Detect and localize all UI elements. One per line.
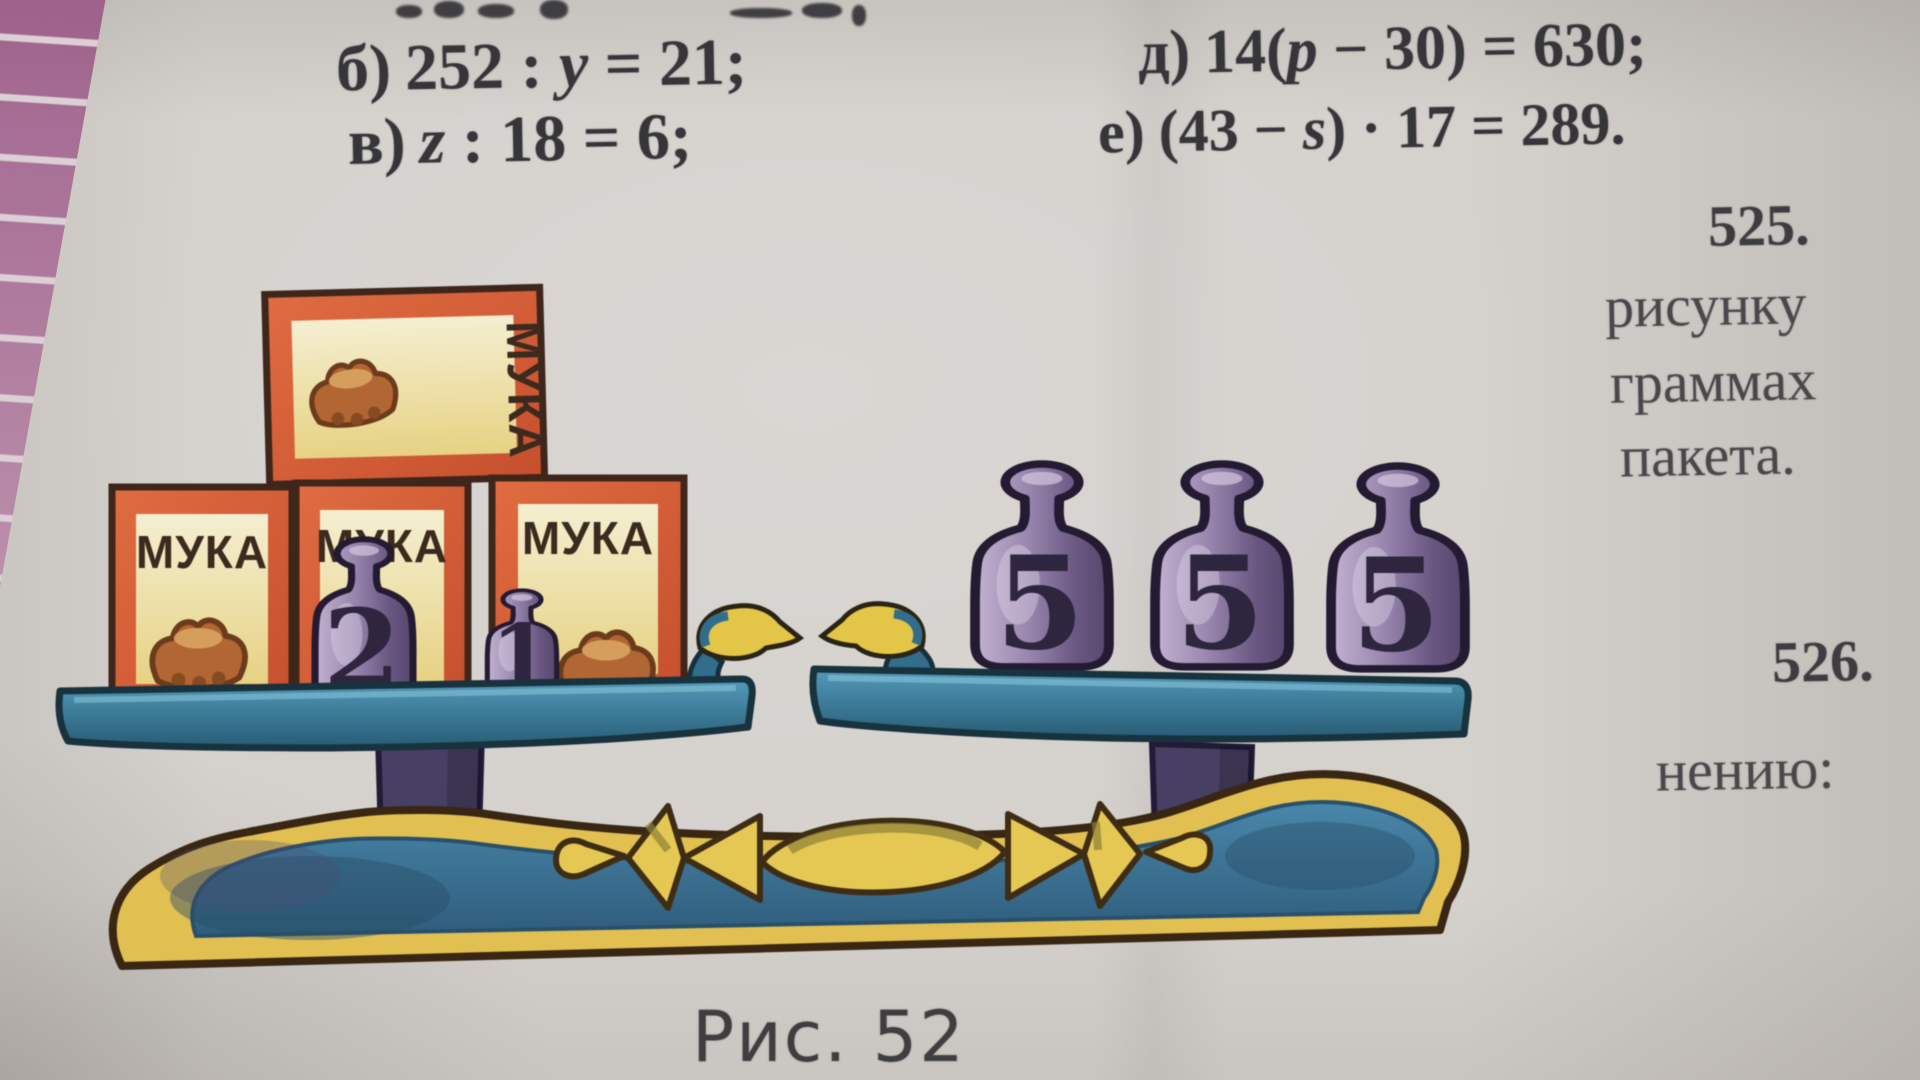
flour-box-1: МУКА — [112, 487, 292, 702]
flour-label-vertical: МУКА — [496, 320, 553, 459]
weight-digit: 5 — [1175, 529, 1264, 679]
flour-label: МУКА — [136, 526, 268, 578]
weight-5kg-3: 5 — [1331, 466, 1465, 681]
fish-ornament — [556, 804, 1210, 908]
weight-digit: 5 — [1351, 531, 1440, 681]
flour-box-top: МУКА — [265, 287, 553, 484]
weight-5kg-2: 5 — [1155, 464, 1289, 679]
balance-scale-illustration: МУКА МУКА МУКА МУКА 2 1 — [0, 0, 1920, 1080]
base-shading — [1225, 822, 1415, 890]
right-pan — [813, 669, 1468, 739]
flour-label: МУКА — [522, 512, 654, 564]
weight-digit: 5 — [995, 529, 1084, 679]
left-pan — [59, 679, 752, 748]
weight-5kg-1: 5 — [975, 464, 1109, 679]
left-swan-head — [699, 606, 800, 659]
right-swan-head — [822, 604, 923, 657]
scale-base — [113, 774, 1465, 966]
figure-caption: Рис. 52 — [692, 996, 966, 1078]
textbook-page-photo: б)252 : y = 21; в)z : 18 = 6; д)14(p − 3… — [0, 0, 1920, 1080]
base-shading — [160, 840, 340, 912]
